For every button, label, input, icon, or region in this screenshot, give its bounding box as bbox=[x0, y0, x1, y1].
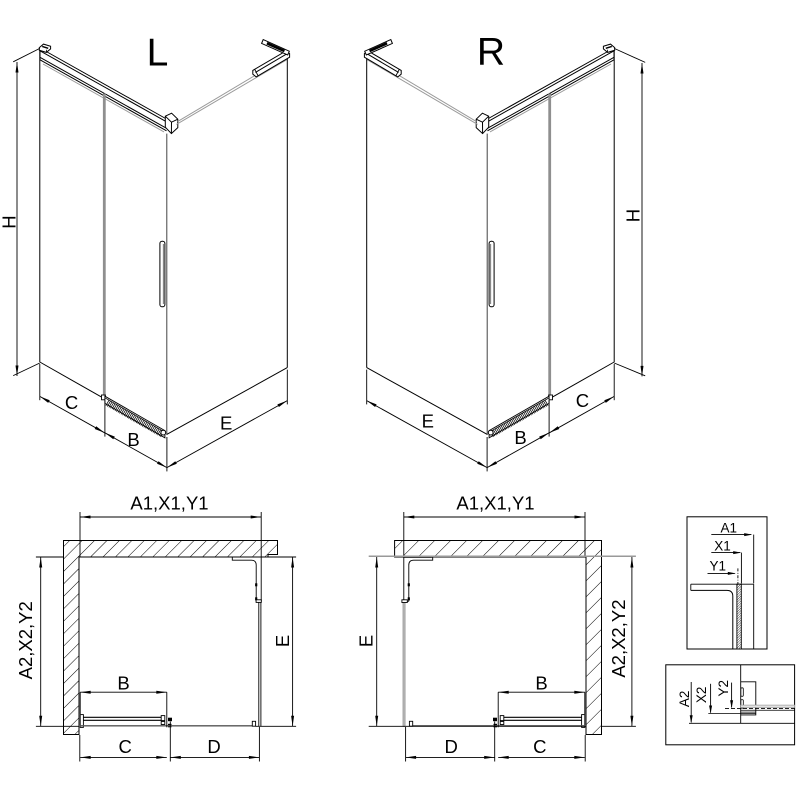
svg-text:B: B bbox=[514, 427, 526, 448]
svg-text:C: C bbox=[119, 736, 132, 757]
svg-text:C: C bbox=[533, 736, 546, 757]
svg-text:D: D bbox=[207, 736, 220, 757]
svg-text:C: C bbox=[65, 392, 78, 413]
svg-text:A2,X2,Y2: A2,X2,Y2 bbox=[15, 601, 36, 679]
svg-text:H: H bbox=[622, 209, 643, 222]
svg-text:D: D bbox=[445, 736, 458, 757]
svg-text:B: B bbox=[117, 673, 129, 694]
svg-text:E: E bbox=[272, 635, 293, 647]
svg-text:E: E bbox=[356, 635, 377, 647]
svg-text:B: B bbox=[127, 429, 139, 450]
svg-text:A1: A1 bbox=[721, 521, 738, 536]
svg-text:A2,X2,Y2: A2,X2,Y2 bbox=[608, 600, 629, 678]
svg-text:Y2: Y2 bbox=[716, 680, 731, 697]
svg-text:X1: X1 bbox=[714, 538, 731, 553]
svg-text:C: C bbox=[576, 390, 589, 411]
svg-text:X2: X2 bbox=[694, 687, 709, 704]
svg-text:A1,X1,Y1: A1,X1,Y1 bbox=[130, 492, 208, 513]
svg-text:A1,X1,Y1: A1,X1,Y1 bbox=[456, 492, 534, 513]
svg-text:R: R bbox=[477, 31, 505, 74]
svg-text:E: E bbox=[220, 412, 232, 433]
svg-text:B: B bbox=[535, 673, 547, 694]
svg-text:Y1: Y1 bbox=[709, 559, 726, 574]
svg-text:E: E bbox=[422, 410, 434, 431]
svg-text:L: L bbox=[147, 32, 169, 75]
svg-text:H: H bbox=[0, 215, 20, 228]
svg-text:A2: A2 bbox=[677, 691, 692, 708]
